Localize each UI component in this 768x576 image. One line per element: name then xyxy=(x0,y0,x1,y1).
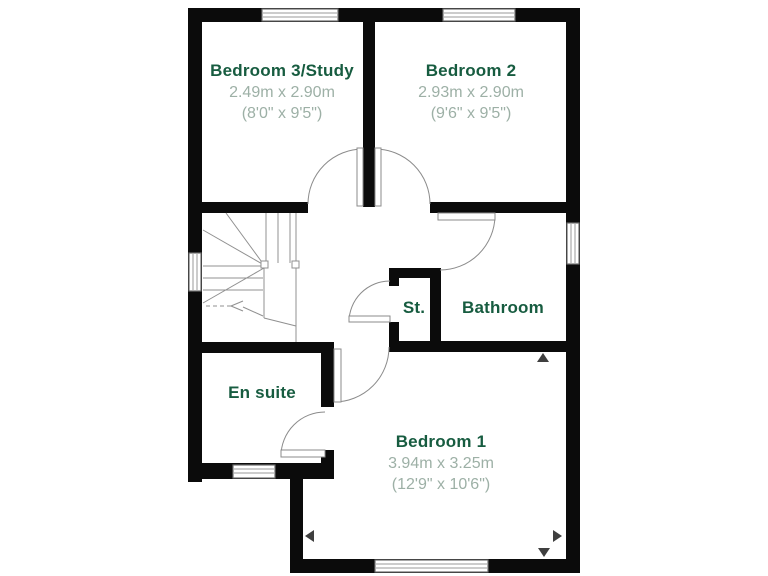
door-bathroom xyxy=(438,213,495,270)
window-icon xyxy=(233,465,275,478)
room-dimensions-imperial: (8'0" x 9'5") xyxy=(210,103,354,124)
room-label-bedroom3: Bedroom 3/Study 2.49m x 2.90m (8'0" x 9'… xyxy=(210,60,354,124)
room-name: St. xyxy=(403,297,425,319)
window-icon xyxy=(262,9,338,21)
door-bedroom2 xyxy=(375,148,430,206)
window-icon xyxy=(189,253,201,291)
wall-bedroom-divider xyxy=(363,22,375,207)
dimension-arrow-left xyxy=(305,530,314,542)
room-label-bedroom2: Bedroom 2 2.93m x 2.90m (9'6" x 9'5") xyxy=(418,60,524,124)
wall-top xyxy=(188,8,580,22)
room-name: Bedroom 1 xyxy=(388,431,494,453)
room-dimensions-metric: 2.93m x 2.90m xyxy=(418,82,524,103)
wall-landing-left xyxy=(202,202,308,213)
room-label-bathroom: Bathroom xyxy=(462,297,544,319)
room-name: En suite xyxy=(228,382,296,404)
room-label-bedroom1: Bedroom 1 3.94m x 3.25m (12'9" x 10'6") xyxy=(388,431,494,495)
wall-ensuite-top xyxy=(202,342,328,353)
door-ensuite xyxy=(281,412,325,457)
room-dimensions-imperial: (9'6" x 9'5") xyxy=(418,103,524,124)
floor-plan: Bedroom 3/Study 2.49m x 2.90m (8'0" x 9'… xyxy=(0,0,768,576)
window-icon xyxy=(443,9,515,21)
door-store xyxy=(349,281,390,322)
door-bedroom1 xyxy=(334,347,389,402)
room-name: Bedroom 3/Study xyxy=(210,60,354,82)
wall-store-right xyxy=(430,268,441,352)
window-icon xyxy=(567,223,579,264)
floor-plan-drawing xyxy=(0,0,768,576)
door-bedroom3 xyxy=(308,148,363,206)
dimension-arrow-right xyxy=(553,530,562,542)
room-dimensions-metric: 3.94m x 3.25m xyxy=(388,453,494,474)
room-label-ensuite: En suite xyxy=(228,382,296,404)
room-dimensions-imperial: (12'9" x 10'6") xyxy=(388,474,494,495)
room-label-store: St. xyxy=(403,297,425,319)
wall-ensuite-right-upper xyxy=(321,342,334,407)
window-icon xyxy=(375,560,488,572)
wall-left xyxy=(188,8,202,482)
room-name: Bedroom 2 xyxy=(418,60,524,82)
room-dimensions-metric: 2.49m x 2.90m xyxy=(210,82,354,103)
wall-store-left-upper xyxy=(389,268,399,286)
dimension-arrow-down xyxy=(538,548,550,557)
staircase-icon xyxy=(203,213,299,342)
wall-right xyxy=(566,8,580,573)
room-name: Bathroom xyxy=(462,297,544,319)
wall-bathroom-top xyxy=(430,202,566,213)
wall-bedroom1-left xyxy=(290,470,303,570)
wall-bedroom1-top xyxy=(389,341,580,352)
dimension-arrow-up xyxy=(537,353,549,362)
